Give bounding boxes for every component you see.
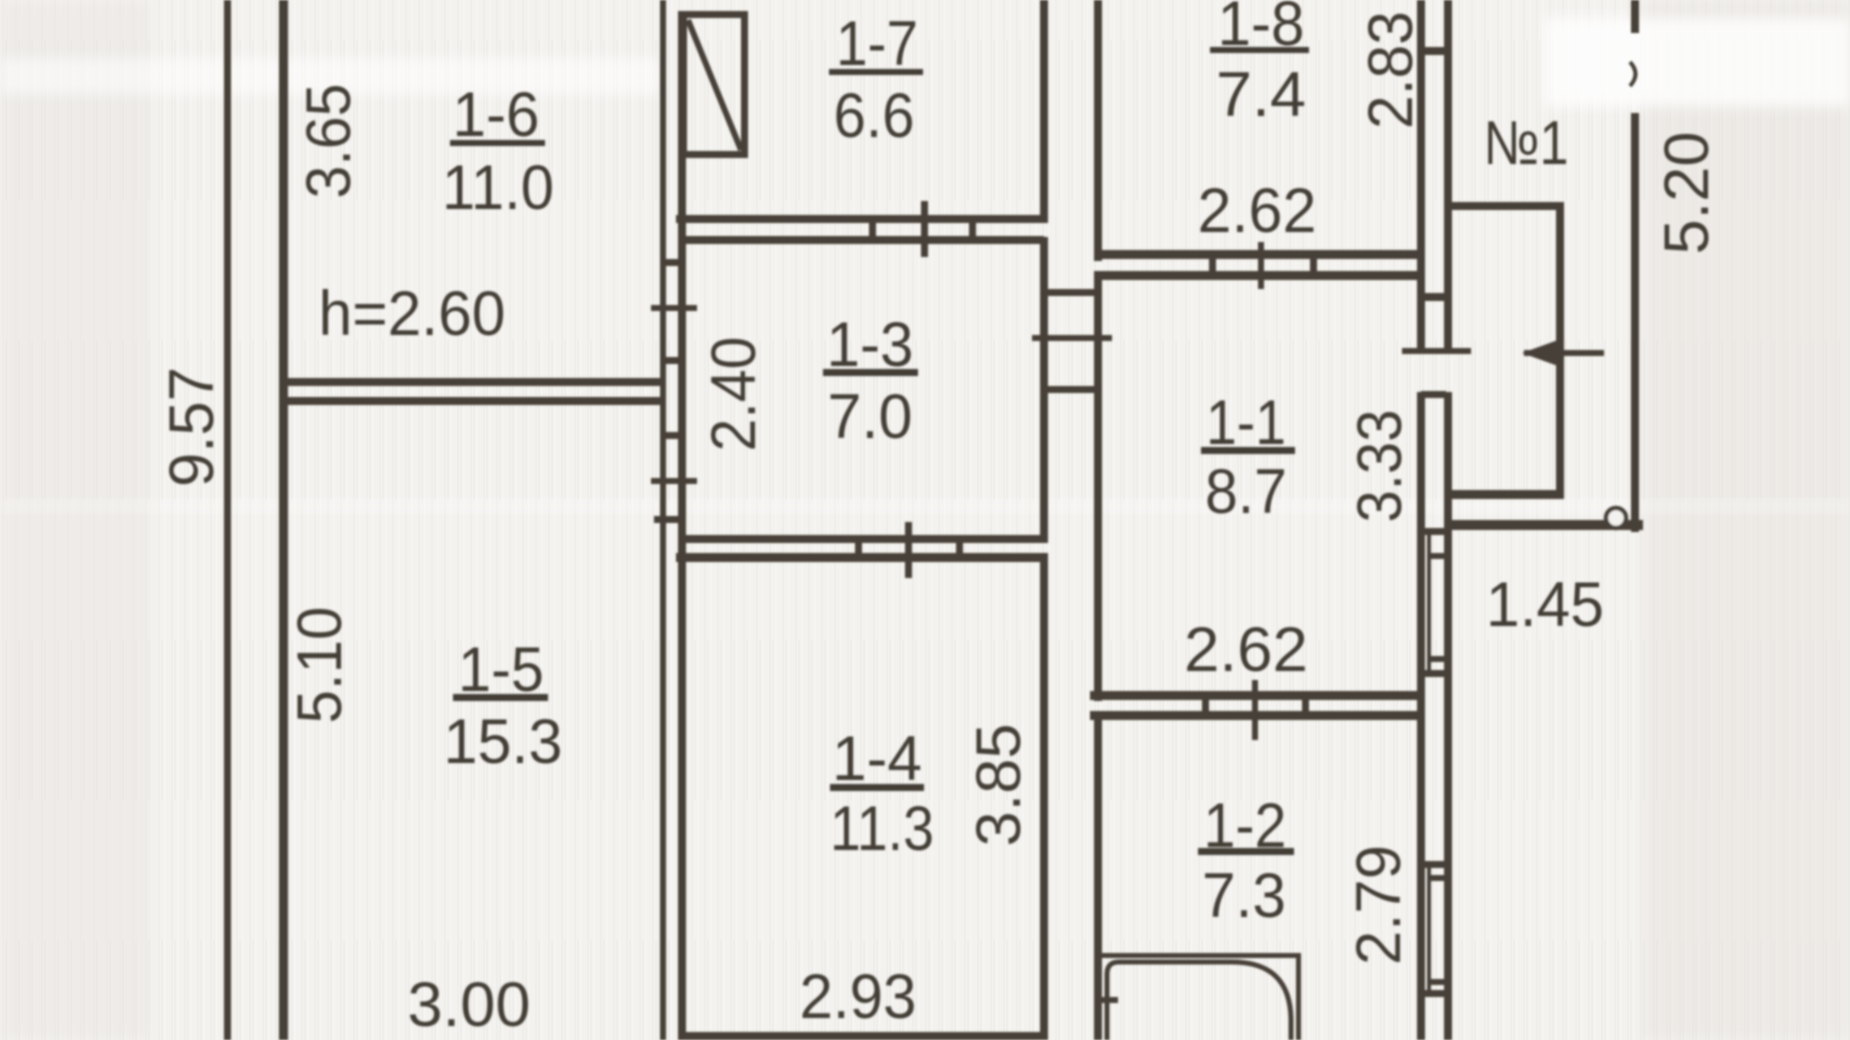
svg-text:7.4: 7.4: [1216, 60, 1306, 130]
svg-text:11.3: 11.3: [830, 794, 934, 864]
svg-text:3.33: 3.33: [1345, 410, 1415, 523]
svg-text:2.62: 2.62: [1184, 615, 1308, 685]
svg-text:7.0: 7.0: [828, 382, 913, 452]
svg-text:2.79: 2.79: [1344, 845, 1414, 965]
svg-text:h=2.60: h=2.60: [319, 279, 506, 349]
svg-text:5.10: 5.10: [285, 607, 355, 724]
svg-text:9.57: 9.57: [157, 367, 227, 487]
svg-text:11.0: 11.0: [442, 153, 554, 223]
svg-text:1-6: 1-6: [453, 80, 540, 150]
svg-text:№1: №1: [1484, 109, 1569, 178]
svg-text:15.3: 15.3: [444, 707, 563, 777]
svg-text:3.65: 3.65: [294, 84, 364, 199]
svg-text:2.83: 2.83: [1356, 11, 1426, 129]
svg-text:2.40: 2.40: [699, 337, 769, 452]
svg-text:3.85: 3.85: [964, 724, 1034, 847]
svg-text:8.7: 8.7: [1205, 457, 1287, 527]
svg-text:1-4: 1-4: [832, 724, 922, 794]
svg-text:1-7: 1-7: [836, 9, 918, 79]
svg-text:2.62: 2.62: [1198, 176, 1317, 246]
svg-text:3.00: 3.00: [408, 970, 531, 1040]
svg-text:2.93: 2.93: [800, 962, 917, 1032]
svg-text:7.3: 7.3: [1202, 861, 1286, 931]
svg-text:6.6: 6.6: [834, 81, 915, 151]
svg-text:5.20: 5.20: [1652, 132, 1722, 255]
svg-text:1.45: 1.45: [1486, 570, 1604, 640]
